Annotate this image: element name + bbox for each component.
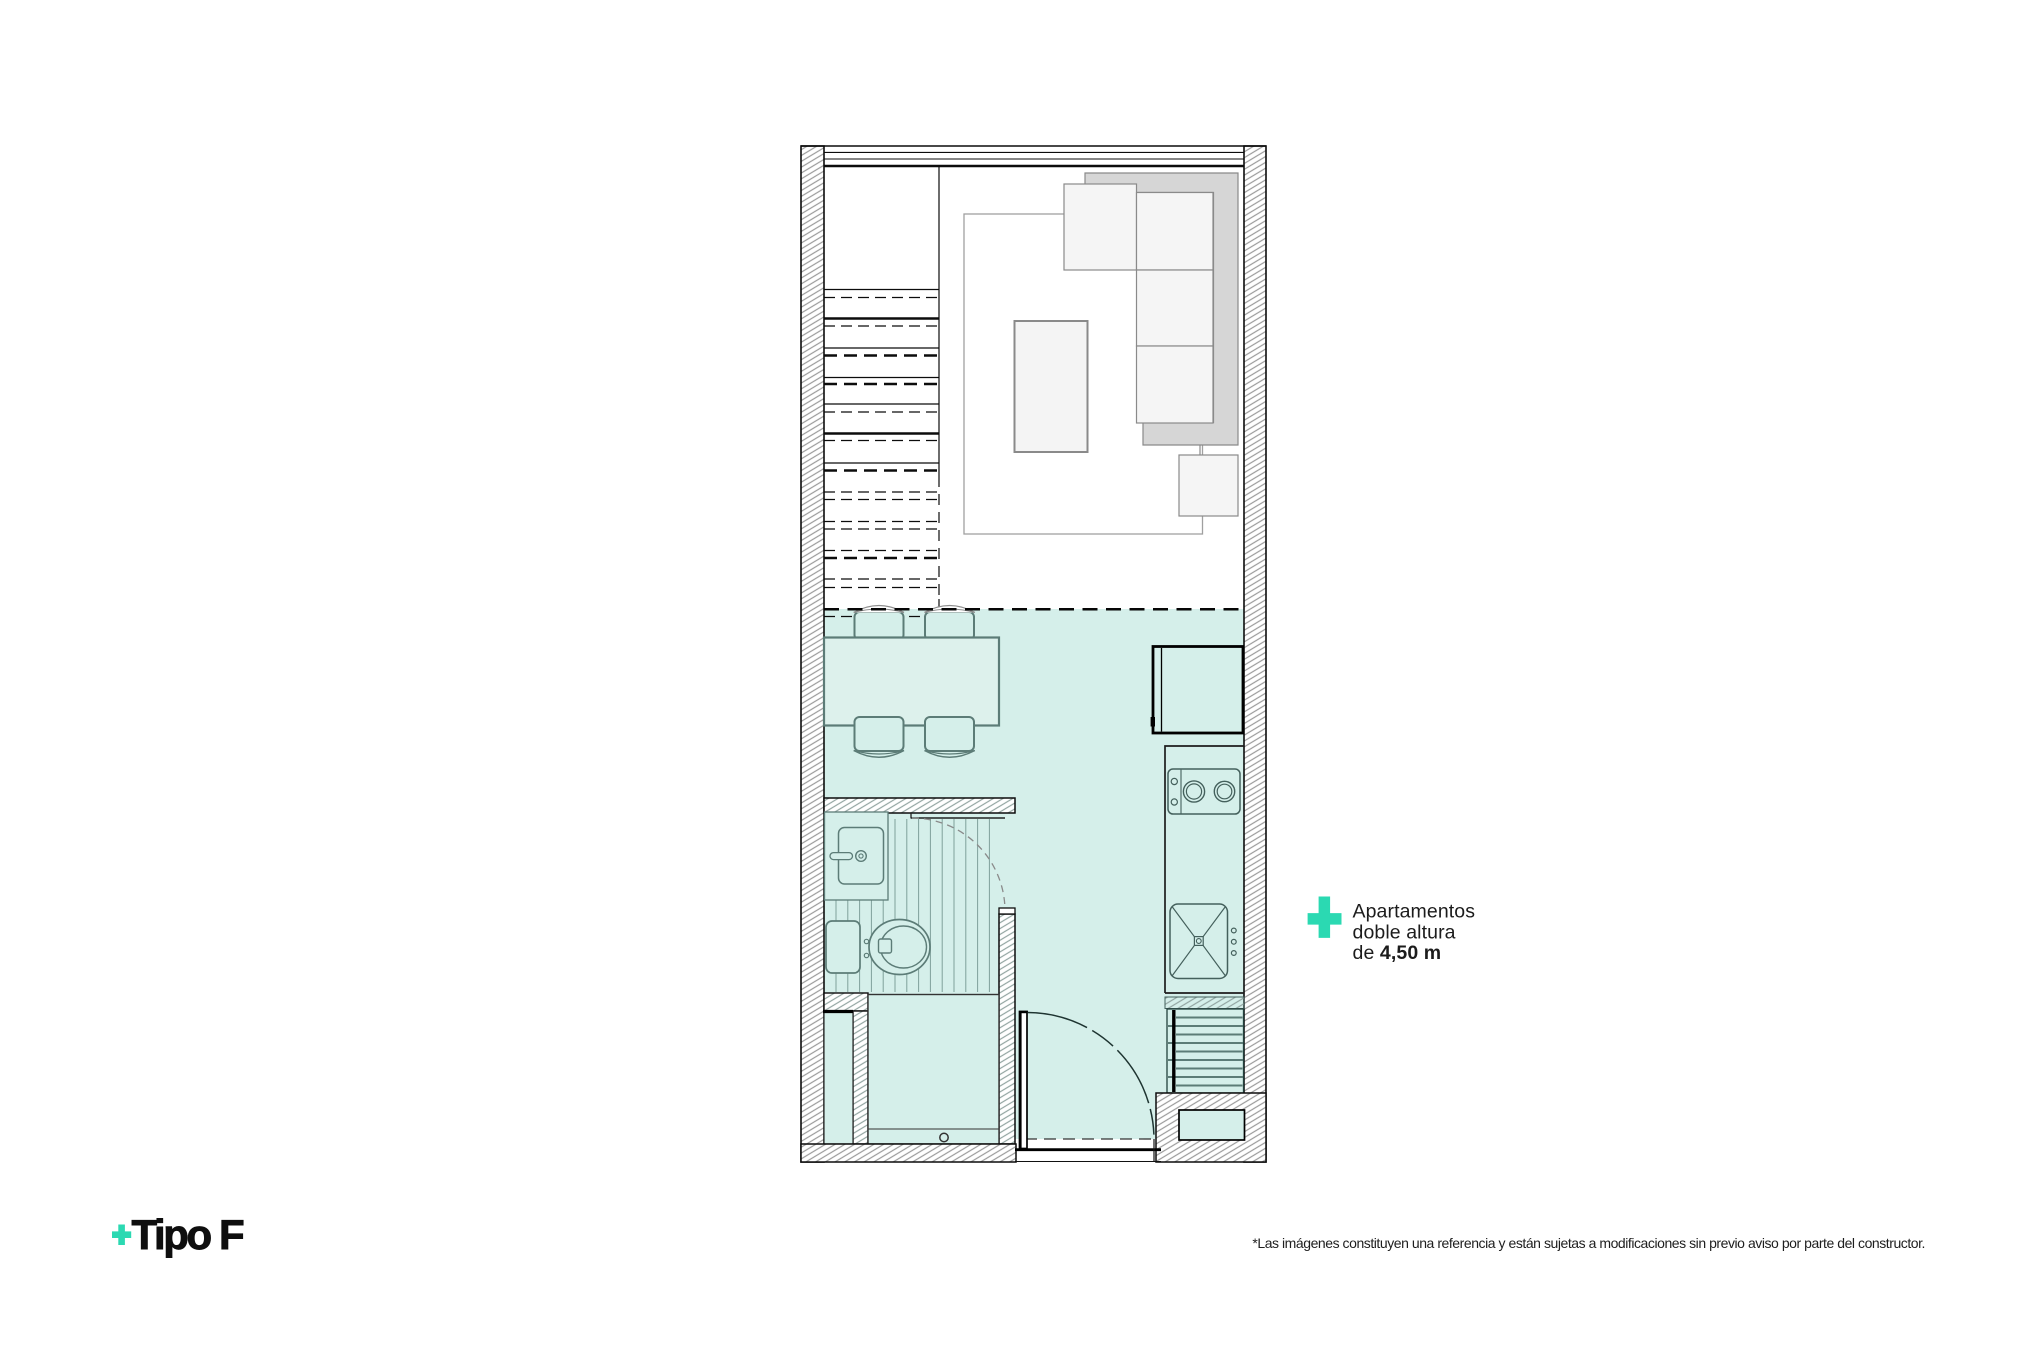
svg-text:Tipo F: Tipo F <box>132 1211 245 1258</box>
svg-text:doble altura: doble altura <box>1353 921 1456 943</box>
svg-text:Apartamentos: Apartamentos <box>1353 901 1476 923</box>
svg-text:*Las imágenes constituyen una: *Las imágenes constituyen una referencia… <box>1252 1235 1925 1251</box>
svg-text:de 4,50 m: de 4,50 m <box>1353 942 1442 964</box>
